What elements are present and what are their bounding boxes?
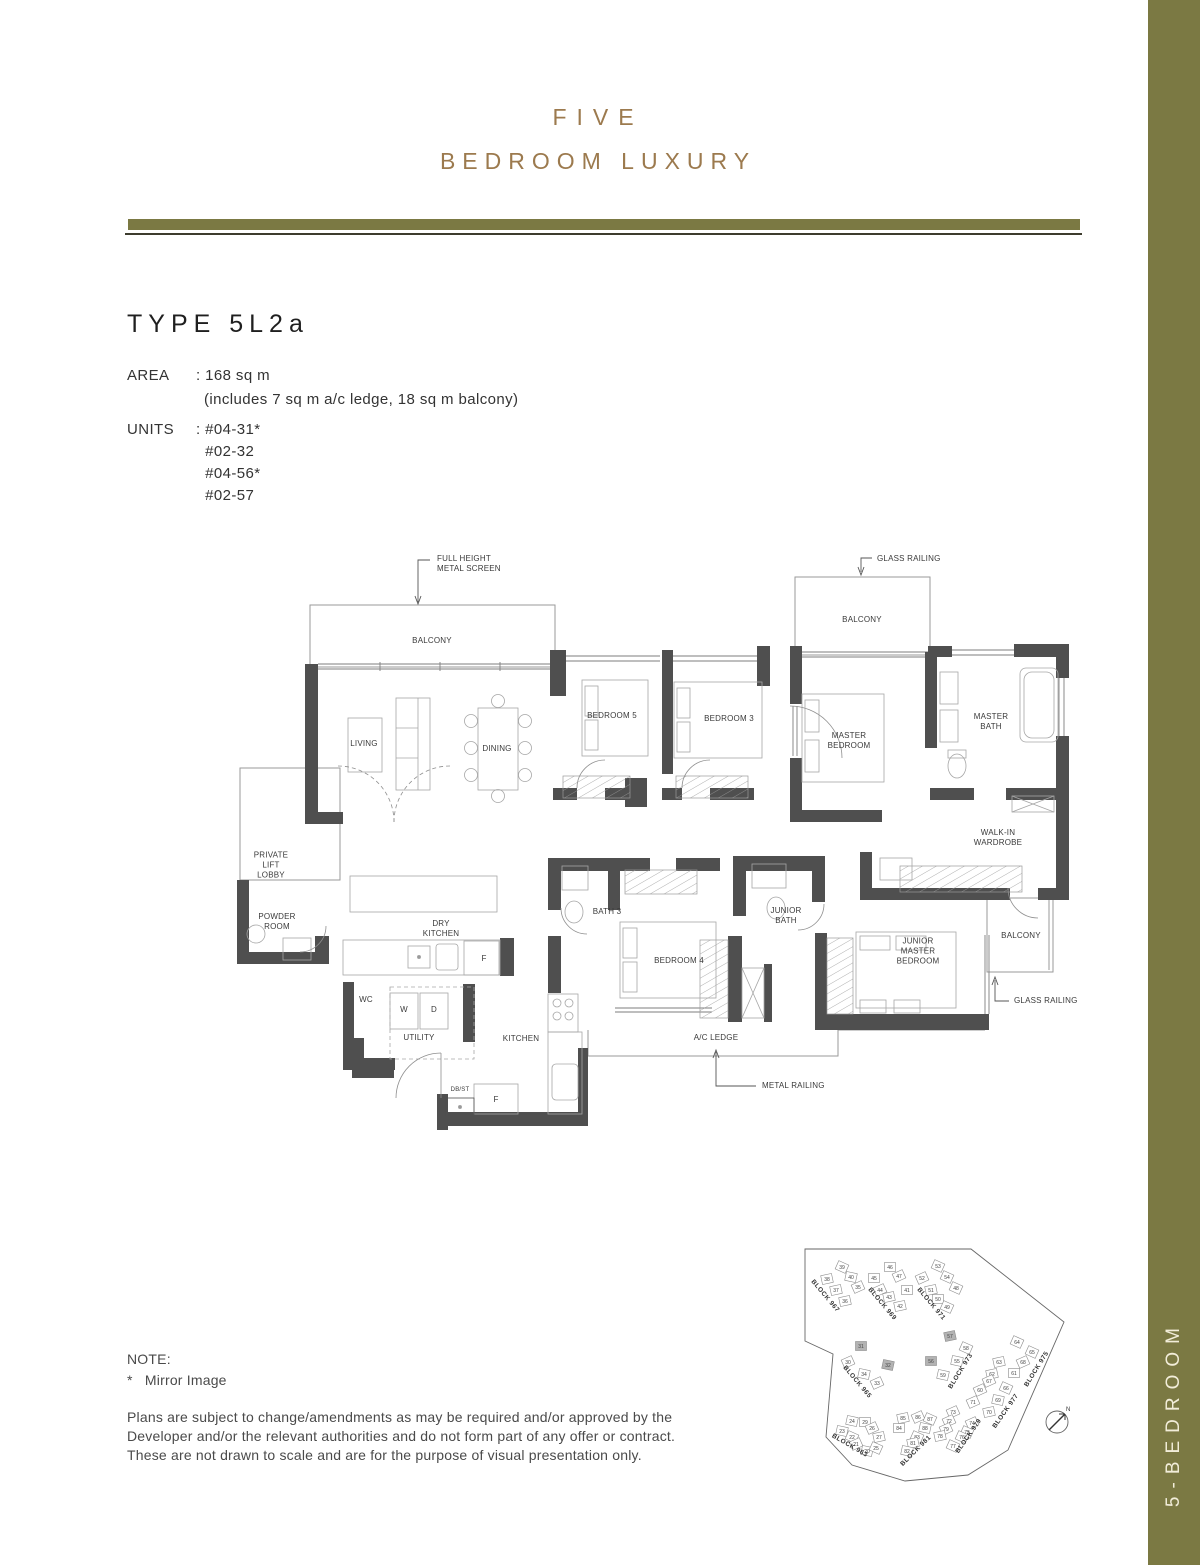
svg-text:35: 35 bbox=[855, 1285, 861, 1291]
site-plan-drawing: 3940383735364647454443414253545251485049… bbox=[795, 1233, 1090, 1523]
site-unit: 66 bbox=[999, 1382, 1013, 1395]
floor-plan: BALCONYBALCONYLIVINGDININGBEDROOM 5BEDRO… bbox=[230, 545, 1090, 1175]
svg-text:25: 25 bbox=[873, 1446, 879, 1452]
svg-text:49: 49 bbox=[944, 1305, 950, 1311]
unit-number: #04-56* bbox=[196, 465, 260, 482]
area-value: : 168 sq m bbox=[196, 367, 270, 384]
site-unit: 86 bbox=[911, 1411, 925, 1424]
svg-text:48: 48 bbox=[953, 1286, 959, 1292]
svg-text:31: 31 bbox=[858, 1344, 864, 1350]
site-unit: 70 bbox=[983, 1406, 996, 1417]
site-block-label: BLOCK 965 bbox=[842, 1364, 873, 1399]
site-unit: 84 bbox=[894, 1424, 905, 1433]
site-unit: 63 bbox=[993, 1356, 1006, 1367]
site-plan: 3940383735364647454443414253545251485049… bbox=[795, 1233, 1090, 1523]
plan-label: BATH 3 bbox=[593, 907, 622, 917]
svg-text:55: 55 bbox=[954, 1359, 960, 1365]
site-unit: 59 bbox=[937, 1369, 950, 1380]
svg-text:87: 87 bbox=[927, 1417, 933, 1423]
unit-type-title: TYPE 5L2a bbox=[127, 310, 309, 339]
svg-text:43: 43 bbox=[886, 1295, 892, 1301]
svg-text:60: 60 bbox=[977, 1388, 983, 1394]
svg-text:88: 88 bbox=[922, 1426, 928, 1432]
section-tab-label: 5-BEDROOM bbox=[1163, 1320, 1185, 1507]
svg-text:63: 63 bbox=[996, 1360, 1002, 1366]
svg-text:70: 70 bbox=[986, 1410, 992, 1416]
unit-number: #02-32 bbox=[196, 443, 254, 460]
svg-text:40: 40 bbox=[848, 1275, 854, 1281]
plan-label: DB/ST bbox=[451, 1087, 470, 1095]
site-unit: 54 bbox=[940, 1271, 954, 1284]
site-block-label: BLOCK 975 bbox=[1023, 1350, 1050, 1388]
plan-label: POWDER ROOM bbox=[258, 912, 295, 932]
svg-text:41: 41 bbox=[904, 1288, 910, 1294]
svg-text:59: 59 bbox=[940, 1373, 946, 1379]
plan-label: WC bbox=[359, 995, 373, 1005]
svg-text:86: 86 bbox=[915, 1415, 921, 1421]
svg-text:27: 27 bbox=[876, 1435, 882, 1441]
plan-label: BEDROOM 4 bbox=[654, 956, 704, 966]
site-unit: 46 bbox=[885, 1263, 896, 1272]
svg-text:66: 66 bbox=[1003, 1386, 1009, 1392]
site-unit: 36 bbox=[839, 1295, 852, 1306]
svg-text:32: 32 bbox=[885, 1363, 891, 1369]
site-unit: 37 bbox=[830, 1284, 843, 1295]
svg-text:46: 46 bbox=[887, 1265, 893, 1271]
svg-text:58: 58 bbox=[963, 1346, 969, 1352]
svg-text:69: 69 bbox=[995, 1398, 1001, 1404]
site-unit: 69 bbox=[992, 1394, 1005, 1405]
svg-text:29: 29 bbox=[862, 1420, 868, 1426]
svg-text:64: 64 bbox=[1014, 1340, 1020, 1346]
plan-label: GLASS RAILING bbox=[877, 554, 941, 564]
disclaimer-line: Plans are subject to change/amendments a… bbox=[127, 1409, 672, 1425]
divider-line bbox=[125, 233, 1082, 235]
svg-text:33: 33 bbox=[874, 1381, 880, 1387]
area-label: AREA bbox=[127, 367, 169, 384]
olive-divider-band bbox=[128, 219, 1080, 230]
site-unit: 27 bbox=[873, 1431, 886, 1442]
svg-text:39: 39 bbox=[839, 1265, 845, 1271]
svg-text:52: 52 bbox=[919, 1276, 925, 1282]
site-unit: 32 bbox=[882, 1359, 895, 1370]
floorplan-brochure-page: { "colors": { "gold": "#9c7a4e", "olive"… bbox=[0, 0, 1200, 1565]
site-unit: 85 bbox=[897, 1412, 910, 1423]
site-unit: 35 bbox=[851, 1281, 865, 1294]
svg-text:23: 23 bbox=[839, 1429, 845, 1435]
plan-label: JUNIOR MASTER BEDROOM bbox=[897, 937, 940, 968]
svg-text:67: 67 bbox=[986, 1379, 992, 1385]
svg-text:71: 71 bbox=[970, 1400, 976, 1406]
site-unit: 31 bbox=[856, 1342, 867, 1351]
site-unit: 56 bbox=[926, 1357, 937, 1366]
svg-text:42: 42 bbox=[897, 1304, 903, 1310]
svg-text:57: 57 bbox=[947, 1334, 953, 1340]
plan-label: DRY KITCHEN bbox=[423, 919, 460, 939]
area-note: (includes 7 sq m a/c ledge, 18 sq m balc… bbox=[204, 391, 518, 408]
section-tab-5-bedroom: 5-BEDROOM bbox=[1148, 0, 1200, 1565]
plan-label: MASTER BEDROOM bbox=[828, 731, 871, 751]
svg-text:65: 65 bbox=[1029, 1350, 1035, 1356]
page-title-line1: FIVE bbox=[0, 104, 1196, 131]
plan-label: W bbox=[400, 1005, 408, 1015]
page-title-line2: BEDROOM LUXURY bbox=[0, 148, 1196, 175]
site-unit: 57 bbox=[944, 1330, 957, 1341]
site-unit: 40 bbox=[845, 1271, 858, 1282]
svg-text:68: 68 bbox=[1020, 1360, 1026, 1366]
site-unit: 48 bbox=[949, 1282, 963, 1295]
site-unit: 42 bbox=[894, 1300, 907, 1311]
plan-label: F bbox=[493, 1095, 498, 1105]
site-unit: 38 bbox=[821, 1273, 834, 1284]
unit-number: #02-57 bbox=[196, 487, 254, 504]
svg-text:37: 37 bbox=[833, 1288, 839, 1294]
plan-label: BEDROOM 5 bbox=[587, 711, 637, 721]
plan-label: WALK-IN WARDROBE bbox=[974, 828, 1022, 848]
unit-number: : #04-31* bbox=[196, 421, 260, 438]
disclaimer-line: These are not drawn to scale and are for… bbox=[127, 1447, 642, 1463]
plan-label: DINING bbox=[482, 744, 511, 754]
site-unit: 33 bbox=[870, 1377, 884, 1390]
units-label: UNITS bbox=[127, 421, 174, 438]
site-unit: 78 bbox=[934, 1430, 947, 1441]
plan-label: BALCONY bbox=[412, 636, 452, 646]
site-unit: 34 bbox=[858, 1368, 871, 1379]
svg-text:47: 47 bbox=[896, 1274, 902, 1280]
svg-text:51: 51 bbox=[928, 1288, 934, 1294]
plan-label: METAL RAILING bbox=[762, 1081, 825, 1091]
svg-text:26: 26 bbox=[869, 1426, 875, 1432]
svg-text:34: 34 bbox=[861, 1372, 867, 1378]
plan-label: BALCONY bbox=[1001, 931, 1041, 941]
site-unit: 64 bbox=[1010, 1336, 1024, 1349]
site-unit: 88 bbox=[919, 1422, 932, 1433]
svg-text:36: 36 bbox=[842, 1299, 848, 1305]
plan-label: A/C LEDGE bbox=[694, 1033, 738, 1043]
note-heading: NOTE: bbox=[127, 1351, 171, 1367]
site-unit: 41 bbox=[902, 1286, 913, 1295]
site-unit: 52 bbox=[915, 1272, 929, 1285]
svg-text:84: 84 bbox=[896, 1426, 902, 1432]
svg-text:24: 24 bbox=[849, 1419, 855, 1425]
plan-label: F bbox=[481, 954, 486, 964]
svg-text:45: 45 bbox=[871, 1276, 877, 1282]
site-unit: 68 bbox=[1016, 1356, 1030, 1369]
plan-label: BEDROOM 3 bbox=[704, 714, 754, 724]
svg-text:78: 78 bbox=[937, 1434, 943, 1440]
site-unit: 24 bbox=[846, 1415, 859, 1426]
floor-plan-labels: BALCONYBALCONYLIVINGDININGBEDROOM 5BEDRO… bbox=[230, 545, 1090, 1175]
plan-label: BALCONY bbox=[842, 615, 882, 625]
svg-text:85: 85 bbox=[900, 1416, 906, 1422]
plan-label: PRIVATE LIFT LOBBY bbox=[254, 851, 288, 882]
site-unit: 71 bbox=[966, 1396, 980, 1409]
site-unit: 61 bbox=[1009, 1369, 1020, 1378]
plan-label: GLASS RAILING bbox=[1014, 996, 1078, 1006]
plan-label: JUNIOR BATH bbox=[771, 906, 802, 926]
plan-label: D bbox=[431, 1005, 437, 1015]
svg-text:61: 61 bbox=[1011, 1371, 1017, 1377]
compass-icon: N bbox=[1046, 1407, 1070, 1433]
site-unit: 65 bbox=[1025, 1346, 1039, 1359]
svg-text:54: 54 bbox=[944, 1275, 950, 1281]
plan-label: LIVING bbox=[350, 739, 377, 749]
plan-label: MASTER BATH bbox=[974, 712, 1009, 732]
plan-label: FULL HEIGHT METAL SCREEN bbox=[437, 554, 501, 574]
svg-text:53: 53 bbox=[935, 1264, 941, 1270]
note-mirror-image: * Mirror Image bbox=[127, 1372, 227, 1388]
svg-text:50: 50 bbox=[935, 1297, 941, 1303]
compass-north-label: N bbox=[1066, 1407, 1070, 1413]
site-unit: 58 bbox=[959, 1342, 973, 1355]
plan-label: KITCHEN bbox=[503, 1034, 540, 1044]
disclaimer-line: Developer and/or the relevant authoritie… bbox=[127, 1428, 675, 1444]
plan-label: UTILITY bbox=[403, 1033, 434, 1043]
site-unit: 53 bbox=[931, 1260, 945, 1273]
site-unit: 45 bbox=[869, 1274, 880, 1283]
svg-text:56: 56 bbox=[928, 1359, 934, 1365]
svg-text:38: 38 bbox=[824, 1277, 830, 1283]
